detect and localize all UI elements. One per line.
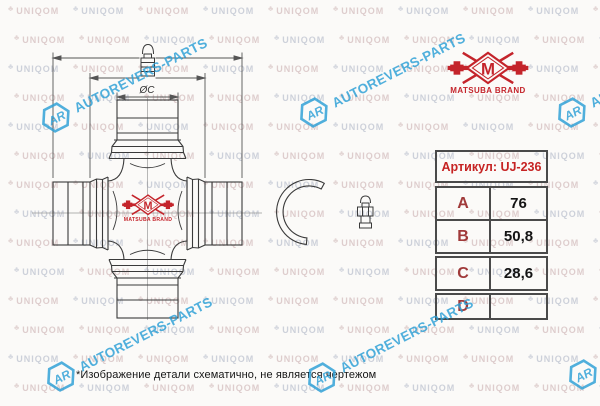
dim-d-label: D [437,295,489,318]
matsuba-brand-logo-small: M MATSUBA BRAND [121,194,175,227]
schematic-disclaimer-note: *Изображение детали схематично, не являе… [76,369,376,381]
table-row: C 28,6 [435,256,548,291]
dim-a-value: 76 [489,188,546,219]
dim-a-label: A [437,188,489,219]
dim-c-label: C [437,258,489,289]
matsuba-monogram: M [481,59,495,78]
dimension-c-label: ØC [139,85,156,96]
grease-fitting-top-icon [141,45,155,77]
spec-table: Артикул: UJ-236 A 76 B 50,8 C 28,6 D [435,150,548,320]
table-row: A 76 [435,186,548,221]
dim-c-value: 28,6 [489,258,546,289]
matsuba-brand-name-small: MATSUBA BRAND [124,217,172,222]
snap-ring-icon [277,180,325,245]
dim-b-value: 50,8 [489,221,546,252]
matsuba-monogram-small: M [144,200,153,212]
article-header: Артикул: UJ-236 [435,150,548,183]
catalog-page: { "brand": { "monogram": "M", "name": "M… [0,0,600,406]
dim-b-label: B [437,221,489,252]
table-row: D [435,293,548,320]
dim-d-value [489,295,546,318]
matsuba-brand-name: MATSUBA BRAND [450,86,525,95]
table-row: B 50,8 [435,219,548,254]
grease-fitting-side-icon [358,196,374,228]
matsuba-brand-logo: M MATSUBA BRAND [446,51,530,100]
